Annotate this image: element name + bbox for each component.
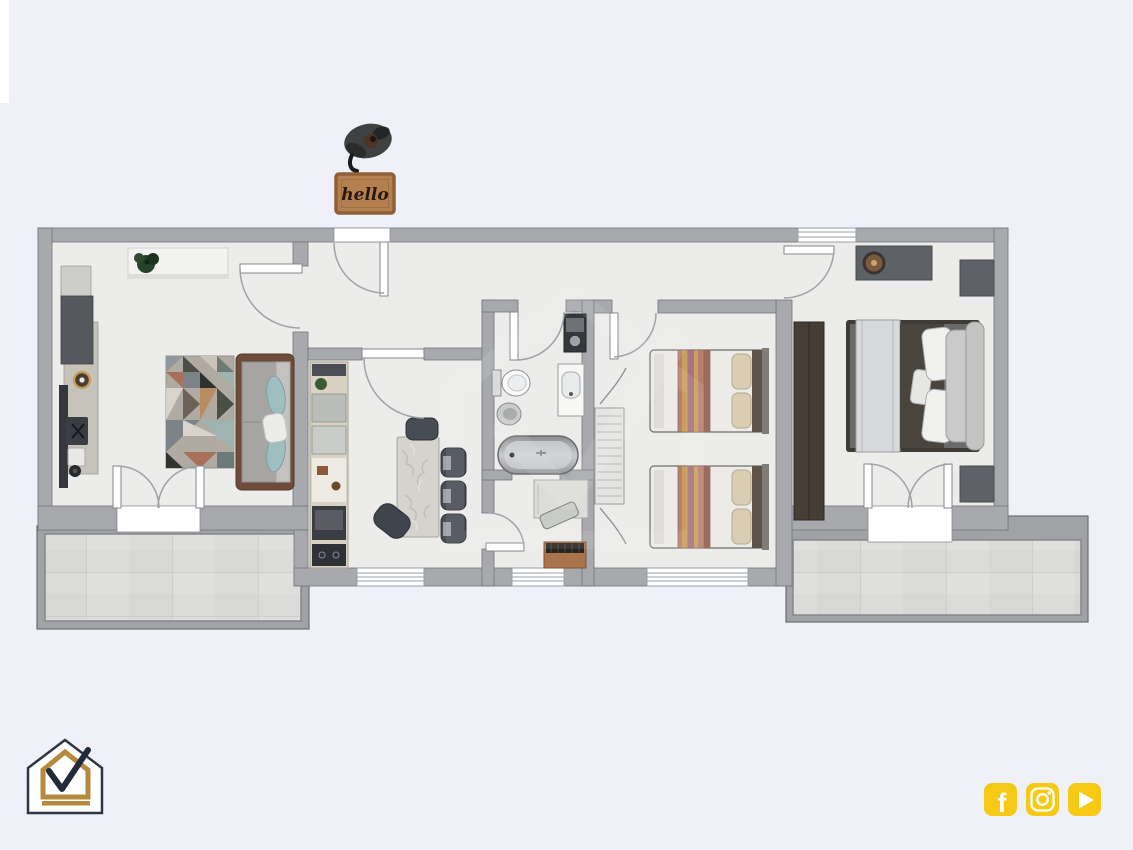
living-french-door-right (196, 466, 204, 508)
youtube-icon[interactable] (1068, 783, 1101, 816)
wall-dining-bath-upper (482, 300, 494, 513)
front-door-threshold (334, 228, 390, 242)
nightstand-top (960, 260, 994, 296)
living-terrace-threshold (117, 506, 200, 532)
wall-living-bottom-left (38, 506, 117, 530)
bed-pillow (732, 509, 751, 544)
floorplan-page: hello f (0, 0, 1133, 850)
wall-outer-left (38, 228, 52, 530)
doormat-text: hello (341, 185, 388, 205)
window-master-top (798, 228, 856, 242)
washing-machine (564, 314, 586, 352)
bed-pillow (732, 470, 751, 505)
dining-door-leaf (362, 349, 424, 358)
front-door-leaf (380, 242, 388, 296)
wall-hall-dining-left (308, 348, 362, 360)
living-french-door-left (113, 466, 121, 508)
master-french-door-right (944, 464, 952, 508)
living-door-leaf (240, 264, 302, 273)
master-french-door-left (864, 464, 872, 508)
facebook-icon[interactable]: f (984, 783, 1017, 818)
wall-mid-bottom-3 (564, 568, 647, 586)
wall-living-hall-top (293, 242, 308, 266)
sink-vanity (558, 364, 584, 416)
nightstand-bottom (960, 466, 994, 502)
wall-living-hall-bottom (293, 332, 308, 506)
bed-pillow (732, 354, 751, 389)
kitchen-sink (68, 448, 85, 466)
logo-underline (42, 801, 90, 806)
instagram-icon[interactable] (1026, 783, 1059, 816)
master-door-leaf (784, 246, 834, 254)
page-corner-sliver (0, 0, 9, 103)
wall-twin-top-right (658, 300, 776, 313)
rug (166, 356, 234, 468)
wall-outer-right (994, 228, 1008, 530)
sofa-pillow-white (262, 412, 289, 443)
doormat: hello (336, 174, 394, 213)
dining-chair-top (406, 418, 438, 440)
wall-mid-bottom-2 (424, 568, 512, 586)
floorplan-canvas: hello f (0, 0, 1133, 850)
kitchen-counter (59, 266, 98, 488)
bed-headboard (762, 348, 769, 434)
sofa (236, 354, 294, 490)
wall-master-bottom-right (952, 506, 1008, 530)
cabinet-plant-icon (315, 378, 327, 390)
master-bed-headboard (966, 322, 984, 450)
wall-bath-top-left (482, 300, 518, 312)
wall-dining-bath-lower (482, 549, 494, 586)
wall-living-bottom-right (200, 506, 308, 530)
wall-hall-dining-right (424, 348, 490, 360)
svg-text:f: f (998, 788, 1008, 818)
wall-twin-master-divider (776, 300, 792, 586)
master-dresser (856, 246, 932, 280)
toilet (492, 370, 530, 396)
master-bed (846, 320, 984, 452)
social-bar: f (984, 783, 1101, 818)
bed-pillow (732, 393, 751, 428)
master-terrace-threshold (868, 506, 952, 542)
wall-outer-top (38, 228, 1008, 242)
wall-mid-bottom-1 (294, 568, 357, 586)
terrace-left (37, 526, 309, 629)
dining-cabinet (310, 362, 348, 568)
bed-headboard (762, 464, 769, 550)
